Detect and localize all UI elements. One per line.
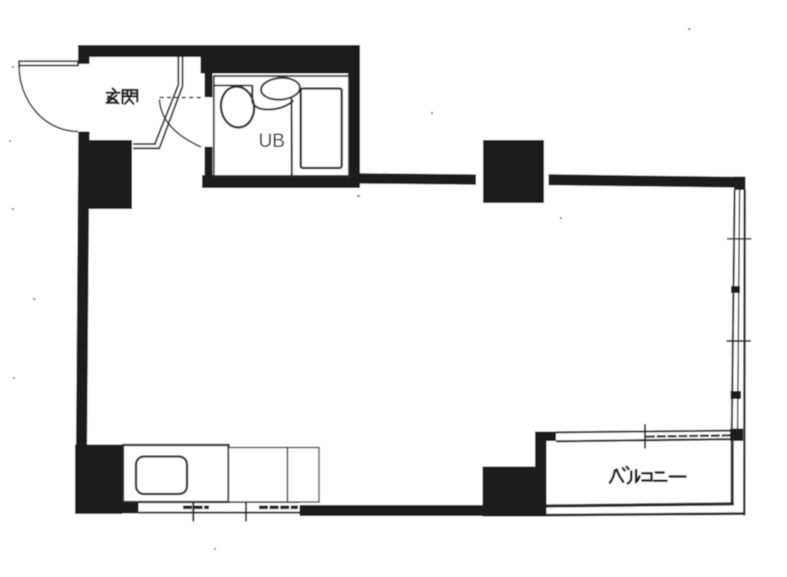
svg-text:UB: UB: [259, 131, 285, 152]
